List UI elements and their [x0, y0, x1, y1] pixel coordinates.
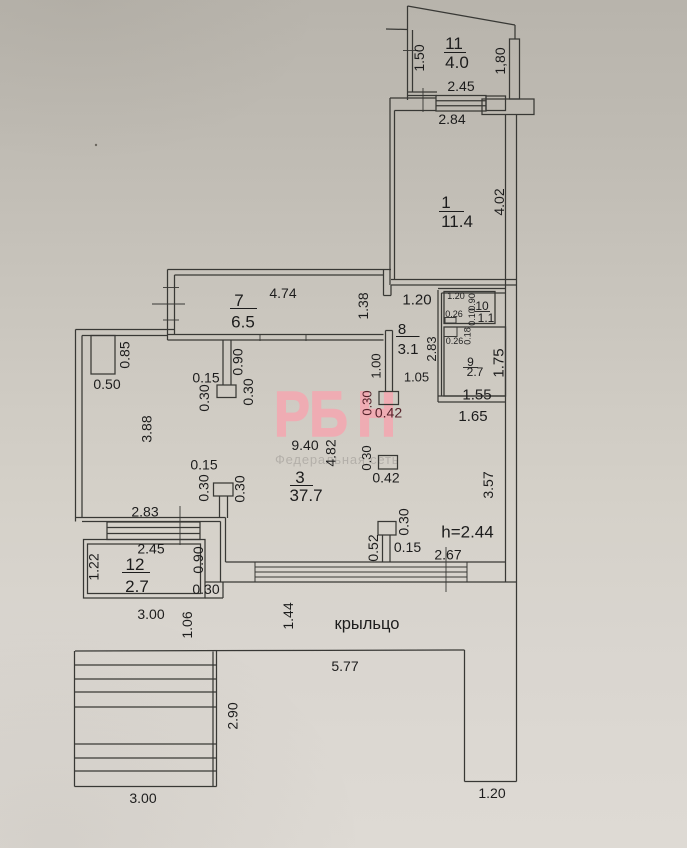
svg-text:0.30: 0.30	[196, 474, 212, 501]
svg-text:11: 11	[445, 34, 463, 53]
svg-text:0.30: 0.30	[396, 508, 412, 535]
svg-text:3.00: 3.00	[129, 790, 156, 806]
svg-text:2.7: 2.7	[467, 365, 484, 379]
svg-text:1.00: 1.00	[369, 353, 384, 378]
svg-text:1.75: 1.75	[491, 348, 508, 377]
svg-text:3: 3	[295, 468, 304, 487]
svg-text:2.83: 2.83	[131, 504, 158, 520]
svg-text:12: 12	[126, 555, 145, 574]
svg-text:0.50: 0.50	[93, 376, 120, 392]
svg-text:0.30: 0.30	[240, 378, 256, 405]
svg-text:2.90: 2.90	[225, 702, 241, 729]
svg-text:1.38: 1.38	[355, 292, 371, 319]
svg-text:7: 7	[234, 291, 243, 310]
svg-text:1.22: 1.22	[86, 553, 102, 580]
svg-text:0.26: 0.26	[445, 309, 463, 319]
svg-text:0.26: 0.26	[446, 336, 464, 346]
svg-text:6.5: 6.5	[231, 313, 255, 332]
svg-text:0.10: 0.10	[467, 308, 477, 326]
svg-text:0.30: 0.30	[232, 475, 248, 502]
svg-text:2.67: 2.67	[434, 547, 461, 563]
svg-text:0.30: 0.30	[196, 384, 212, 411]
svg-text:0.30: 0.30	[360, 390, 375, 415]
svg-text:3.1: 3.1	[398, 341, 419, 358]
svg-text:3.57: 3.57	[480, 471, 496, 498]
svg-text:0.18: 0.18	[463, 327, 473, 345]
svg-text:37.7: 37.7	[289, 486, 322, 505]
svg-text:4.0: 4.0	[445, 53, 469, 72]
svg-text:0.42: 0.42	[372, 470, 399, 486]
svg-text:1.44: 1.44	[280, 602, 296, 629]
svg-text:0.90: 0.90	[190, 546, 206, 573]
svg-text:1.20: 1.20	[402, 292, 431, 309]
svg-text:h=2.44: h=2.44	[441, 523, 493, 542]
svg-text:1.05: 1.05	[404, 370, 429, 385]
svg-text:0.30: 0.30	[192, 581, 219, 597]
svg-text:2.84: 2.84	[438, 111, 465, 127]
svg-text:0.15: 0.15	[394, 539, 421, 555]
svg-text:1.50: 1.50	[411, 44, 427, 71]
svg-text:крыльцо: крыльцо	[335, 615, 400, 633]
svg-text:8: 8	[398, 321, 406, 338]
svg-text:3.88: 3.88	[139, 415, 155, 442]
svg-text:1.65: 1.65	[458, 408, 487, 425]
svg-text:4.74: 4.74	[269, 285, 296, 301]
svg-text:0.15: 0.15	[190, 457, 217, 473]
svg-text:1.20: 1.20	[478, 785, 505, 801]
svg-text:0.30: 0.30	[359, 445, 374, 470]
svg-text:0.52: 0.52	[365, 534, 381, 561]
svg-text:1.20: 1.20	[447, 291, 465, 301]
svg-text:1: 1	[441, 193, 450, 212]
svg-text:5.77: 5.77	[331, 658, 358, 674]
svg-text:4.02: 4.02	[491, 188, 507, 215]
svg-text:1.1: 1.1	[478, 311, 495, 325]
svg-text:2.7: 2.7	[125, 577, 149, 596]
svg-text:2.45: 2.45	[447, 78, 474, 94]
svg-text:0.42: 0.42	[375, 405, 402, 421]
svg-text:2.83: 2.83	[424, 336, 439, 361]
svg-text:3.00: 3.00	[137, 606, 164, 622]
svg-text:0.85: 0.85	[117, 341, 133, 368]
svg-text:0.15: 0.15	[192, 370, 219, 386]
svg-text:0.90: 0.90	[230, 348, 246, 375]
svg-text:11.4: 11.4	[441, 212, 473, 231]
svg-text:4.82: 4.82	[323, 439, 339, 466]
svg-text:1.55: 1.55	[462, 387, 491, 404]
svg-text:1.06: 1.06	[179, 611, 195, 638]
svg-text:1,80: 1,80	[492, 47, 508, 74]
svg-text:9.40: 9.40	[291, 437, 318, 453]
